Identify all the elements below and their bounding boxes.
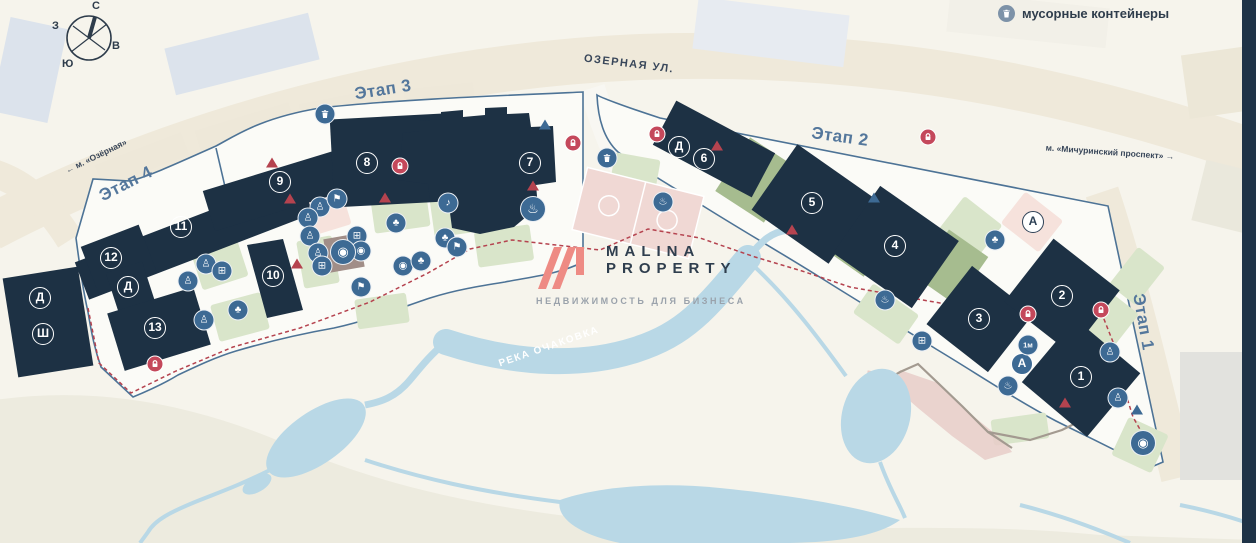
entrance-marker-icon (291, 259, 303, 269)
slide-icon: ♙ (1108, 388, 1129, 409)
building-marker-10: 10 (262, 265, 284, 287)
right-edge-panel (1242, 0, 1256, 543)
building-marker-2: 2 (1051, 285, 1073, 307)
gate-lock-icon (920, 129, 937, 146)
building-marker-12: 12 (100, 247, 122, 269)
compass-rose: С З В Ю (54, 2, 124, 72)
gate-lock-icon (565, 135, 582, 152)
building-marker-d: Д (668, 136, 690, 158)
legend-trash-label: мусорные контейнеры (1022, 6, 1169, 21)
entrance-marker-icon (379, 193, 391, 203)
watermark: MALINA PROPERTY НЕДВИЖИМОСТЬ ДЛЯ БИЗНЕСА (536, 243, 746, 306)
building-marker-4: 4 (884, 235, 906, 257)
playframe-icon: ⚑ (327, 189, 348, 210)
playground-icon: ♙ (194, 310, 215, 331)
entrance-marker-icon (1059, 398, 1071, 408)
entrance-marker-icon (266, 158, 278, 168)
building-marker-9: 9 (269, 171, 291, 193)
building-marker-3: 3 (968, 308, 990, 330)
height-mark-icon: 1м (1018, 335, 1039, 356)
gym-icon: ⊞ (912, 331, 933, 352)
fountain-icon: ♣ (386, 213, 407, 234)
compass-south-label: Ю (62, 58, 73, 70)
slide-icon: ♙ (1100, 342, 1121, 363)
malina-logo-icon (536, 243, 594, 289)
entrance-marker-icon (527, 181, 539, 191)
building-marker-5: 5 (801, 192, 823, 214)
slide-icon: ♙ (178, 271, 199, 292)
masterplan-map: 9 8 11 12 Д 13 Д Ш 10 7 Д 6 5 4 3 2 1 А … (0, 0, 1256, 543)
compass-north-label: С (92, 0, 100, 12)
building-marker-6: 6 (693, 148, 715, 170)
watermark-brand-line2: PROPERTY (606, 260, 737, 277)
screen-icon: ⚑ (351, 277, 372, 298)
tree-icon: ♣ (411, 251, 432, 272)
building-marker-8: 8 (356, 152, 378, 174)
watermark-subtitle: НЕДВИЖИМОСТЬ ДЛЯ БИЗНЕСА (536, 296, 746, 306)
legend: мусорные контейнеры (998, 5, 1169, 22)
compass-west-label: З (52, 20, 59, 32)
trash-icon (998, 5, 1015, 22)
building-marker-1: 1 (1070, 366, 1092, 388)
entry-point-icon (868, 193, 880, 203)
bbq-icon: ♨ (998, 376, 1019, 397)
gym-icon: ⊞ (212, 261, 233, 282)
watermark-brand-line1: MALINA (606, 243, 737, 260)
building-marker-13: 13 (144, 317, 166, 339)
building-marker-a: А (1011, 353, 1033, 375)
bbq-icon: ♨ (653, 192, 674, 213)
entry-point-icon (1131, 405, 1143, 415)
building-marker-d: Д (117, 276, 139, 298)
building-marker-d: Д (29, 287, 51, 309)
trash-icon (597, 148, 618, 169)
gate-lock-icon (1020, 306, 1037, 323)
gate-lock-icon (392, 158, 409, 175)
right-arrow-icon: → (1165, 151, 1174, 162)
building-marker-7: 7 (519, 152, 541, 174)
gate-lock-icon (1093, 302, 1110, 319)
building-marker-a: А (1022, 211, 1044, 233)
bbq-icon: ♨ (875, 290, 896, 311)
gate-lock-icon (649, 126, 666, 143)
entrance-marker-icon (284, 194, 296, 204)
tree-icon: ♣ (228, 300, 249, 321)
headphones-icon: ♪ (438, 193, 459, 214)
neighbor-building (164, 13, 319, 95)
entrance-marker-icon (786, 225, 798, 235)
trash-icon (315, 104, 336, 125)
building-marker-sh: Ш (32, 323, 54, 345)
compass-east-label: В (112, 40, 120, 52)
entry-point-icon (539, 120, 551, 130)
volleyball-icon: ◉ (1130, 430, 1156, 456)
gym-icon: ⊞ (312, 256, 333, 277)
bbq-icon: ♨ (520, 196, 546, 222)
entrance-marker-icon (711, 141, 723, 151)
tree-icon: ♣ (985, 230, 1006, 251)
building-marker-11: 11 (170, 216, 192, 238)
gate-lock-icon (147, 356, 164, 373)
volleyball-icon: ◉ (330, 239, 356, 265)
spiral-icon: ⚑ (447, 237, 468, 258)
